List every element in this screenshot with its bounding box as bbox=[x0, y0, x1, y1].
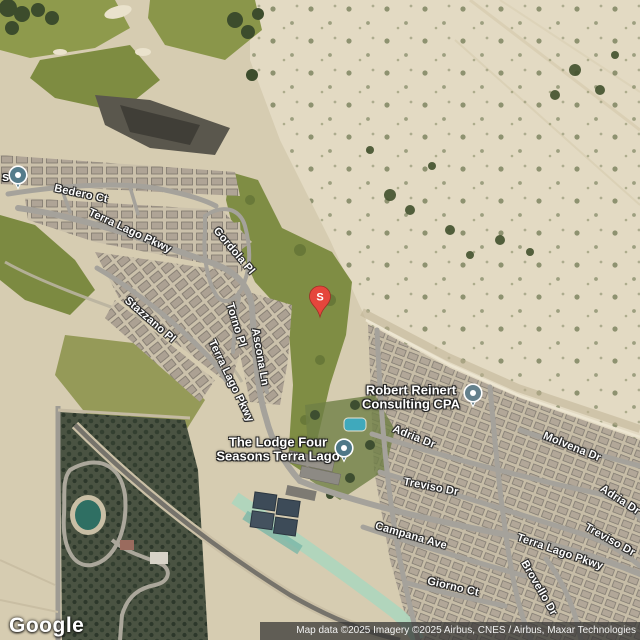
pin-dot bbox=[341, 445, 347, 451]
place-label-robert-reinert-consulting-cpa[interactable]: Robert Reinert Consulting CPA bbox=[362, 384, 460, 413]
place-pin-lodge[interactable] bbox=[333, 438, 355, 464]
pin-dot bbox=[470, 390, 476, 396]
pin-dot bbox=[15, 172, 21, 178]
marker-pin-s[interactable]: S bbox=[308, 285, 332, 319]
place-pin-robert-reinert[interactable] bbox=[462, 383, 484, 409]
place-label-line: Consulting CPA bbox=[362, 398, 460, 412]
place-label-lodge-four-seasons[interactable]: The Lodge Four Seasons Terra Lago bbox=[216, 436, 339, 465]
place-label-line: Seasons Terra Lago bbox=[216, 450, 339, 464]
map-viewport[interactable]: Bedero Ct Terra Lago Pkwy Gordola Pl Sta… bbox=[0, 0, 640, 640]
google-logo[interactable]: Google bbox=[9, 614, 84, 638]
pond bbox=[75, 500, 101, 530]
map-attribution: Map data ©2025 Imagery ©2025 Airbus, CNE… bbox=[260, 622, 640, 640]
pin-letter: S bbox=[316, 292, 323, 304]
place-pin-left-edge[interactable] bbox=[7, 165, 29, 191]
